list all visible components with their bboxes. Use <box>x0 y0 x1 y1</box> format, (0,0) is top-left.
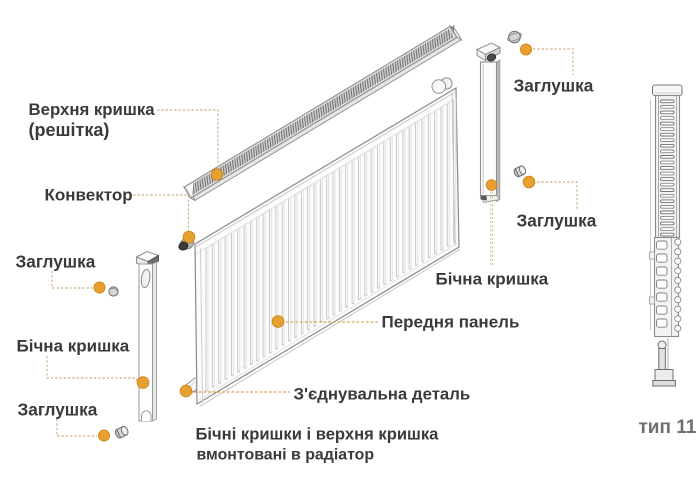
svg-text:вмонтовані в радіатор: вмонтовані в радіатор <box>197 446 375 463</box>
svg-text:Конвектор: Конвектор <box>45 185 133 204</box>
svg-text:Бічна кришка: Бічна кришка <box>436 269 549 288</box>
svg-text:Бічні кришки і верхня кришка: Бічні кришки і верхня кришка <box>196 425 440 444</box>
svg-text:Верхня кришка: Верхня кришка <box>29 100 156 119</box>
svg-text:Заглушка: Заглушка <box>514 75 594 95</box>
svg-text:Заглушка: Заглушка <box>18 399 98 419</box>
svg-text:Бічна кришка: Бічна кришка <box>17 336 130 355</box>
svg-text:Заглушка: Заглушка <box>16 251 96 271</box>
svg-text:Заглушка: Заглушка <box>517 210 597 230</box>
svg-text:Передня панель: Передня панель <box>382 312 520 331</box>
svg-text:тип 11: тип 11 <box>639 417 697 438</box>
svg-text:(решітка): (решітка) <box>29 120 110 140</box>
svg-text:З'єднувальна деталь: З'єднувальна деталь <box>294 384 471 403</box>
